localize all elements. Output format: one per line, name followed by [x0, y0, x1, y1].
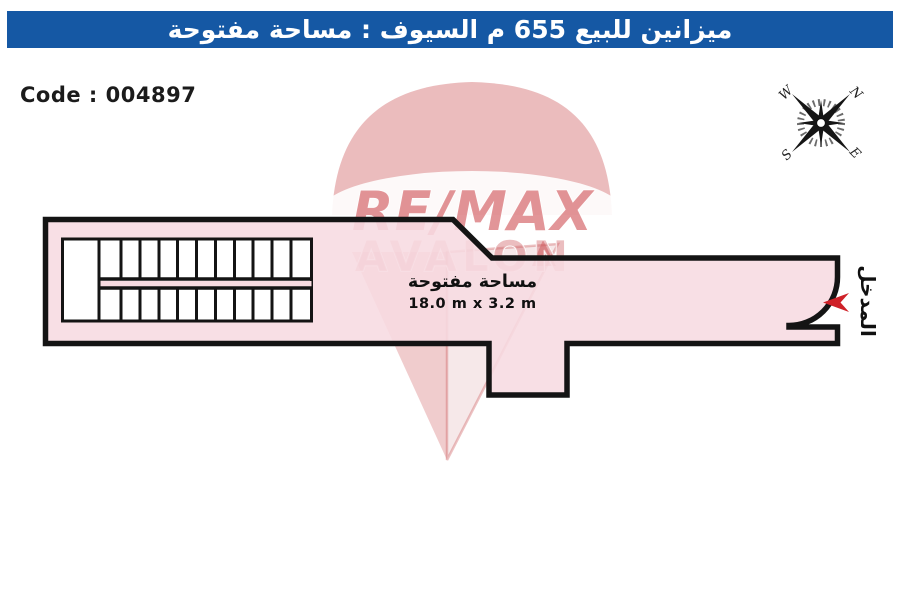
compass-hub [817, 119, 826, 128]
staircase [63, 239, 312, 321]
compass-rose-icon: W N S E [776, 82, 865, 164]
stair-mid-gap [101, 281, 312, 287]
compass-letter-n: N [846, 83, 866, 103]
compass-letter-e: E [845, 144, 863, 162]
entrance-label: المدخل [856, 261, 880, 341]
compass-letter-s: S [779, 147, 796, 164]
area-label: مساحة مفتوحة [375, 272, 570, 292]
dimensions-label: 18.0 m x 3.2 m [375, 296, 570, 312]
floor-plan-sheet: ميزانين للبيع 655 م السيوف : مساحة مفتوح… [0, 0, 900, 599]
compass-letter-w: W [776, 82, 797, 103]
